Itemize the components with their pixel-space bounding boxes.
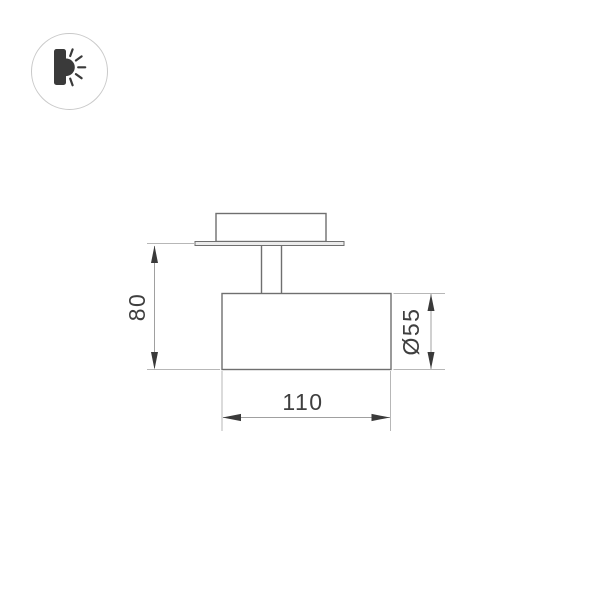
diameter-arrow-up — [428, 294, 435, 311]
dimension-height-80: 80 — [124, 244, 220, 370]
mount-plate — [195, 242, 344, 246]
height-arrow-down — [151, 352, 158, 370]
dimension-length-110: 110 — [222, 371, 391, 431]
length-dimension-label: 110 — [282, 389, 323, 415]
fixture-outline — [195, 214, 391, 370]
mount-canopy — [216, 214, 326, 242]
height-dimension-label: 80 — [124, 293, 150, 322]
height-arrow-up — [151, 246, 158, 264]
length-arrow-right — [372, 414, 391, 421]
length-arrow-left — [223, 414, 242, 421]
product-dimension-image: 80 Ø55 110 — [0, 0, 600, 600]
dimension-drawing: 80 Ø55 110 — [0, 0, 600, 600]
body-cylinder — [222, 294, 391, 370]
dimension-diameter-55: Ø55 — [394, 294, 446, 370]
diameter-arrow-down — [428, 352, 435, 369]
diameter-dimension-label: Ø55 — [398, 308, 424, 356]
